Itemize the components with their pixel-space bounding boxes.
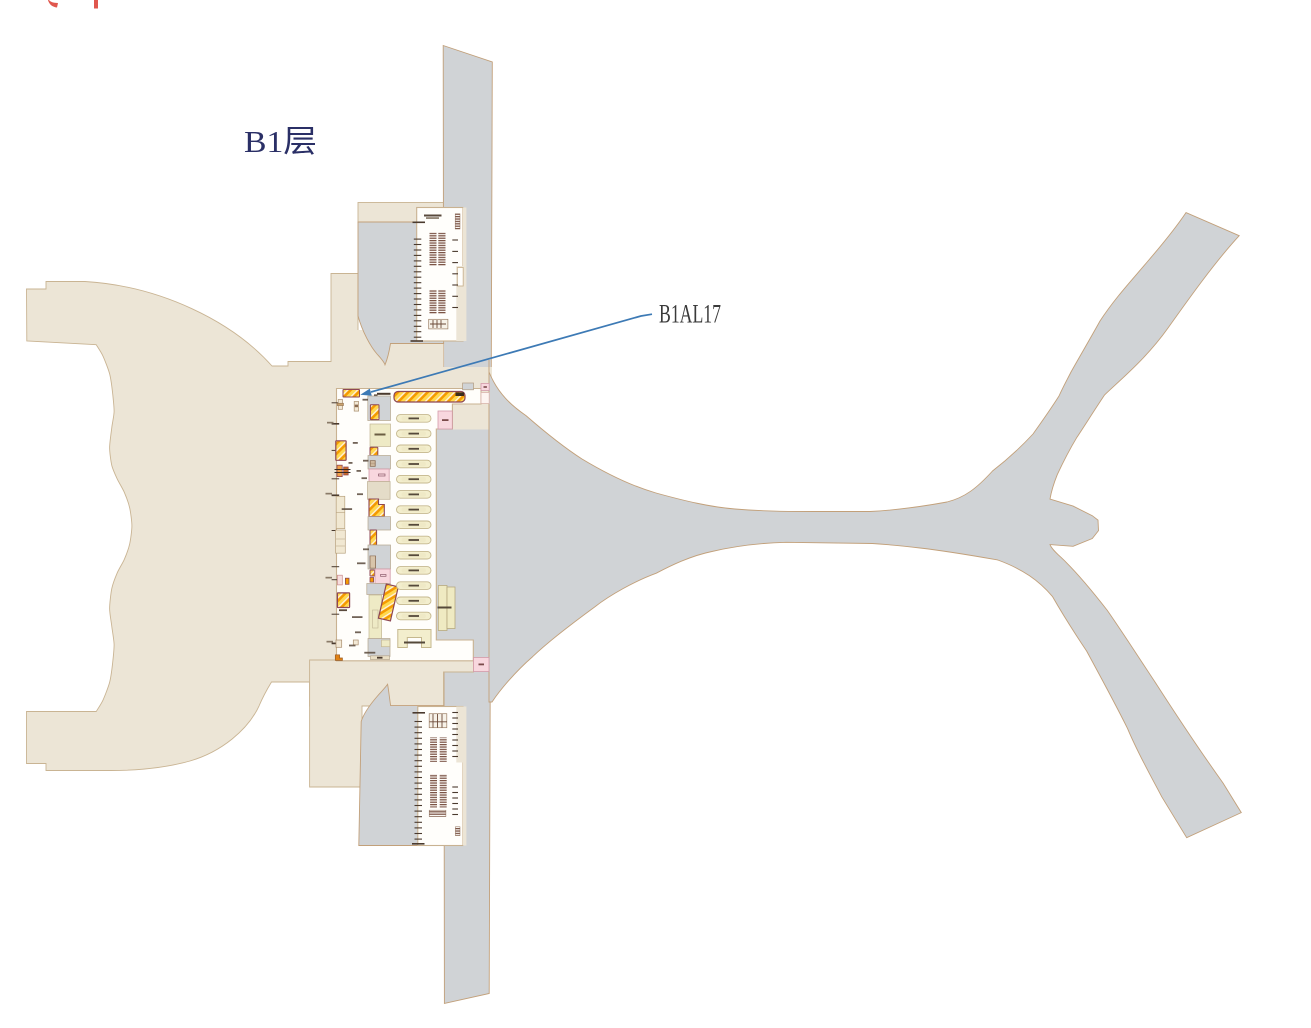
svg-text:B1层: B1层 (244, 124, 317, 159)
svg-text:B1AL17: B1AL17 (659, 300, 721, 329)
